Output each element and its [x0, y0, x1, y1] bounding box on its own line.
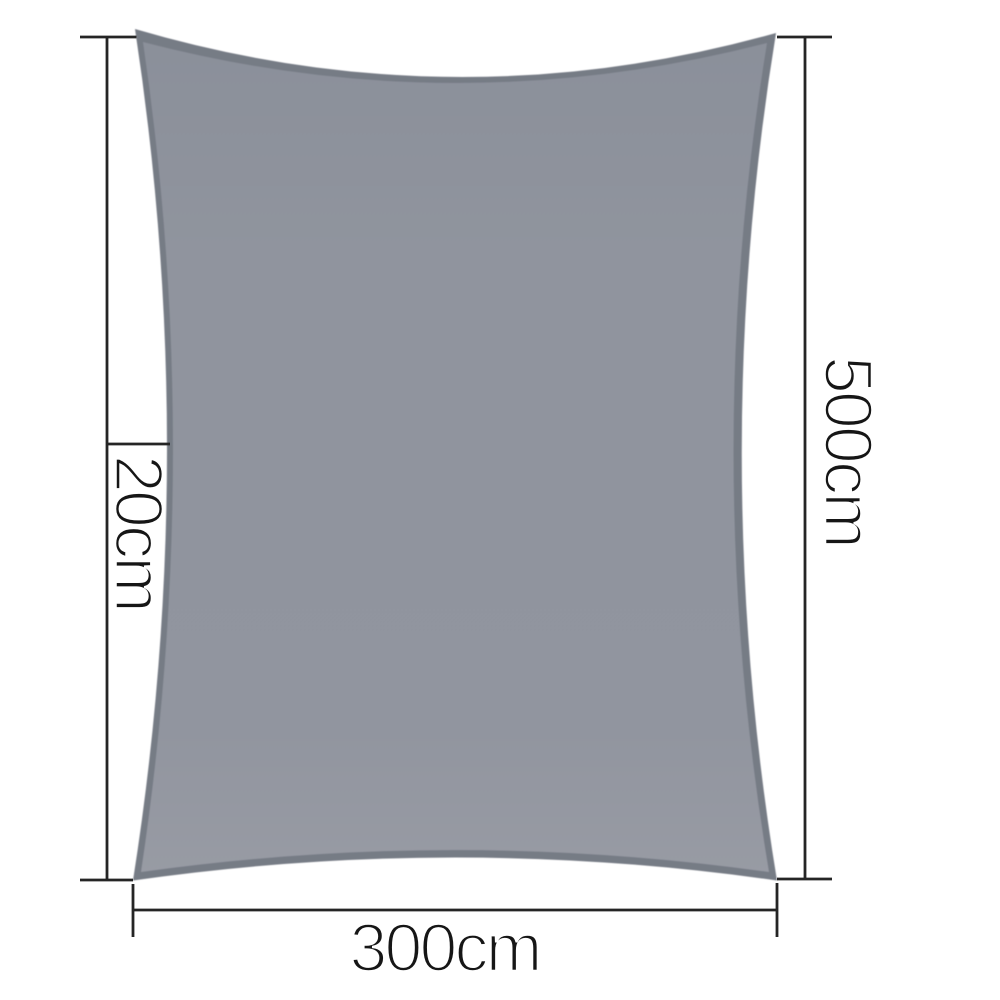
svg-text:20cm: 20cm — [101, 455, 177, 610]
svg-text:500cm: 500cm — [810, 356, 886, 546]
svg-text:300cm: 300cm — [350, 910, 540, 986]
